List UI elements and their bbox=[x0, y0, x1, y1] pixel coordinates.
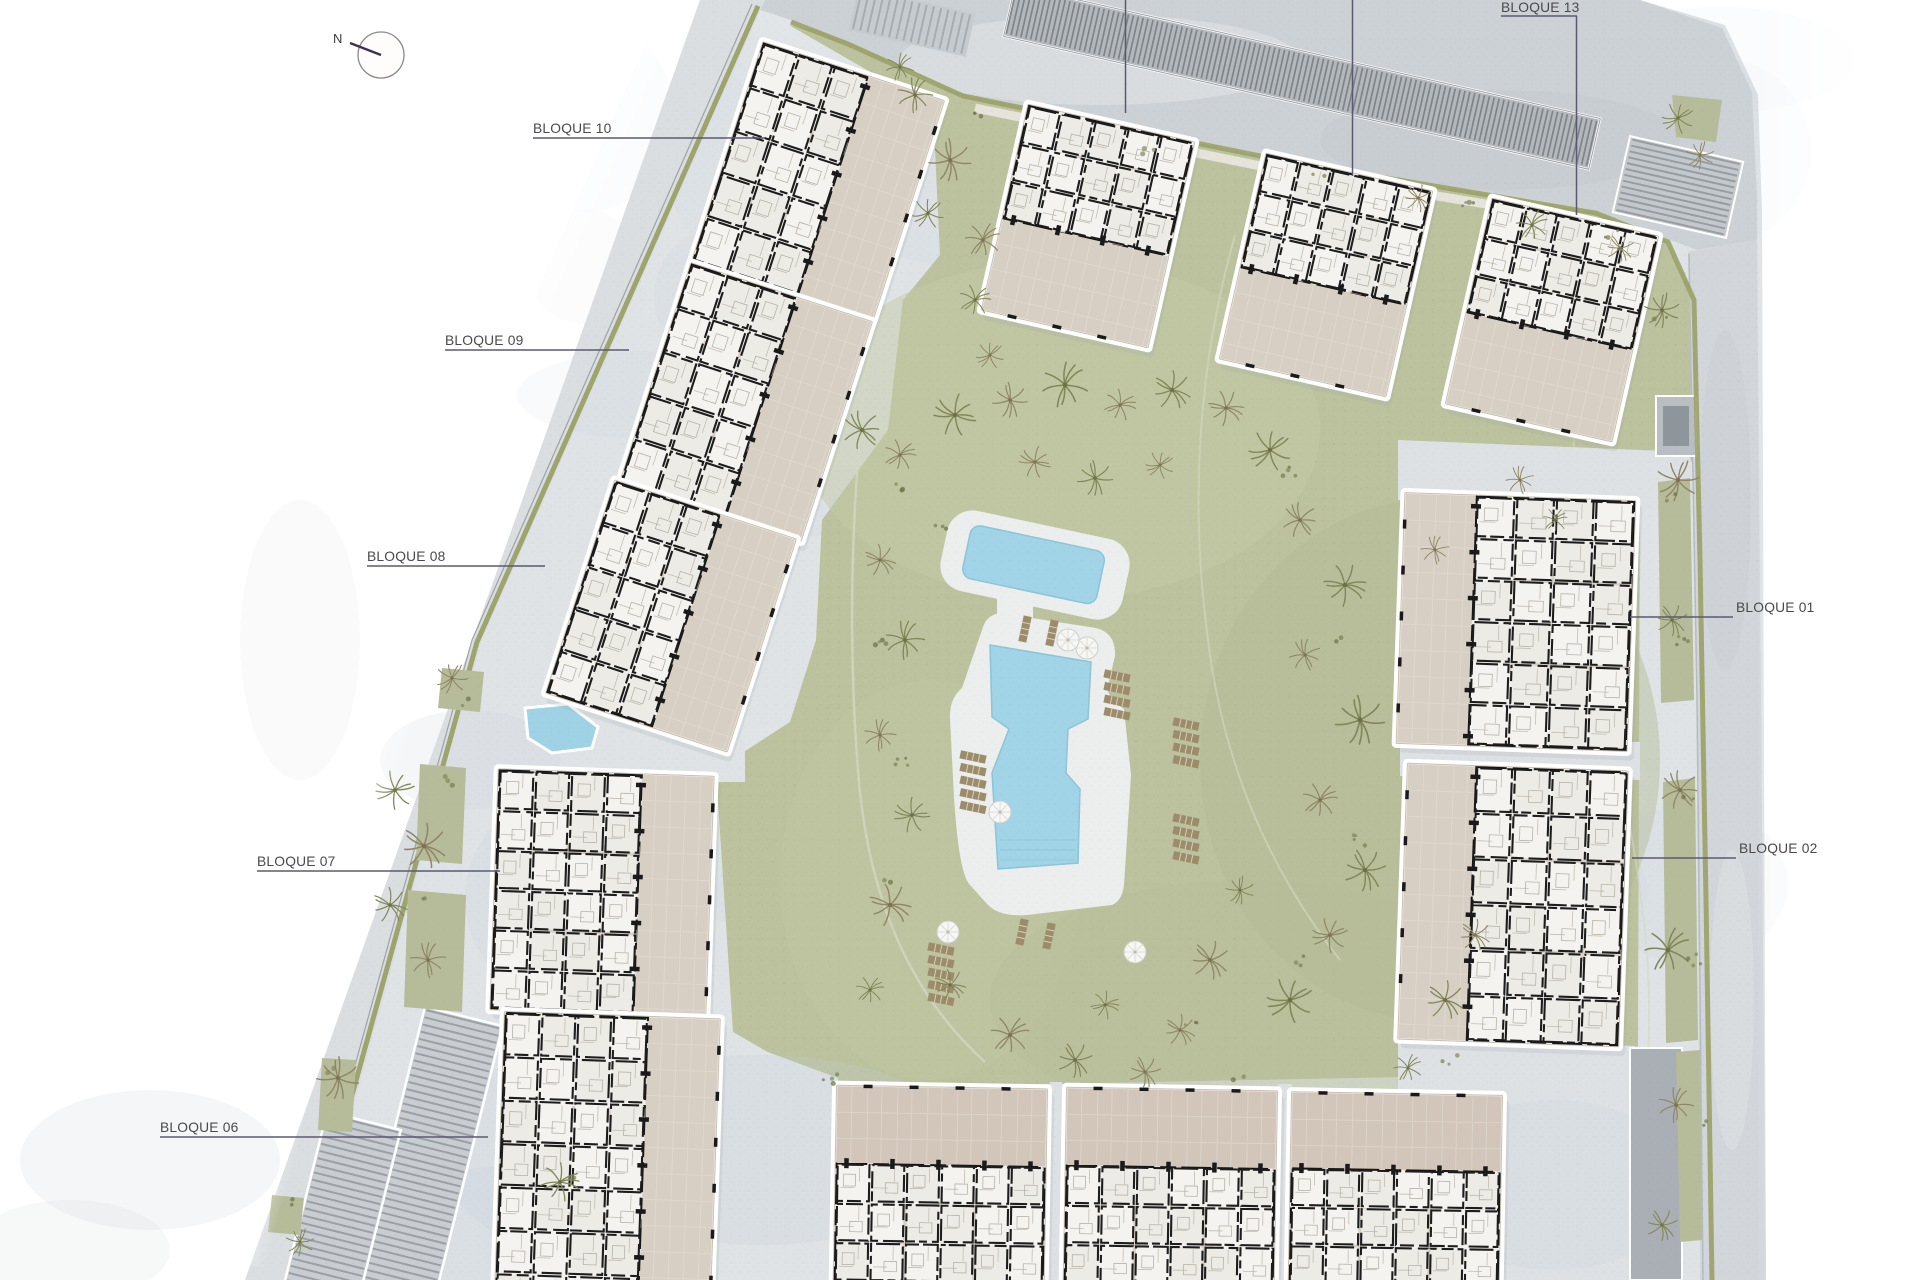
svg-text:BLOQUE 02: BLOQUE 02 bbox=[1739, 841, 1818, 856]
svg-text:BLOQUE 01: BLOQUE 01 bbox=[1736, 600, 1815, 615]
svg-text:BLOQUE 10: BLOQUE 10 bbox=[533, 121, 612, 136]
svg-text:BLOQUE 06: BLOQUE 06 bbox=[160, 1120, 239, 1135]
svg-text:BLOQUE 13: BLOQUE 13 bbox=[1501, 0, 1580, 15]
svg-text:BLOQUE 07: BLOQUE 07 bbox=[257, 854, 336, 869]
svg-text:BLOQUE 08: BLOQUE 08 bbox=[367, 549, 446, 564]
svg-text:N: N bbox=[333, 31, 342, 46]
svg-text:BLOQUE 09: BLOQUE 09 bbox=[445, 333, 524, 348]
